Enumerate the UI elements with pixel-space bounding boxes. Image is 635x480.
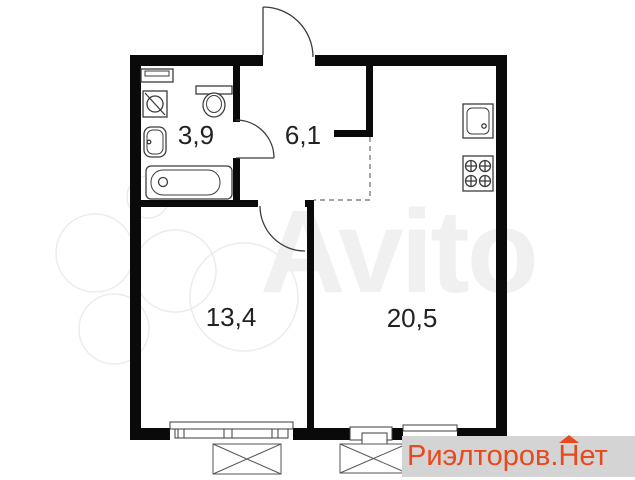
bottom-wall-segment [141, 428, 170, 440]
window-kitchen [403, 425, 457, 431]
bathroom-right-wall-upper [233, 66, 240, 122]
entrance-door [263, 7, 313, 57]
crossed-box [340, 444, 407, 473]
entrance-door-arc [263, 7, 313, 57]
bathtub [146, 166, 232, 199]
kitchen-living-room-area-label: 20,5 [387, 303, 438, 333]
logo-text-suffix: ет [579, 442, 607, 471]
bottom-wall-segment [293, 428, 350, 440]
watermark-circle [134, 230, 216, 312]
house-roof-icon [559, 435, 579, 443]
top-wall-right [315, 55, 507, 66]
bathroom-area-label: 3,9 [178, 120, 214, 150]
kitchen-sink [463, 104, 493, 138]
kitchen-wall-stub-vertical [366, 66, 373, 137]
watermark-circle [56, 214, 134, 292]
crossed-box [213, 444, 281, 474]
top-wall-left [130, 55, 263, 66]
living-room-area-label: 13,4 [206, 302, 257, 332]
bathroom-bottom-wall [141, 200, 258, 207]
watermark-text: Avito [260, 186, 536, 318]
stove [463, 156, 493, 191]
right-wall [496, 55, 507, 440]
shelf [141, 69, 173, 82]
burner [466, 161, 477, 172]
bathroom-door [236, 120, 274, 158]
wash-basin [144, 127, 166, 157]
logo-text-prefix: Риэлторов. [407, 442, 558, 471]
kitchen-fixtures [463, 104, 493, 191]
burner [480, 176, 491, 187]
balcony-boxes [213, 444, 407, 474]
logo-house-letter: Н [558, 442, 579, 471]
toilet [196, 86, 232, 117]
kitchen-wall-stub-horizontal [334, 130, 373, 137]
burner [466, 176, 477, 187]
hallway-area-label: 6,1 [285, 120, 321, 150]
window-room [170, 422, 293, 438]
floor-plan-image: Avito [0, 0, 635, 480]
floor-plan: Avito [0, 0, 635, 480]
avito-watermark: Avito [56, 176, 536, 364]
washing-machine [143, 91, 167, 117]
burner [480, 161, 491, 172]
left-wall [130, 55, 141, 440]
balcony-door [350, 427, 392, 445]
bathroom-door-arc [236, 120, 274, 158]
rooms-divider-wall [307, 200, 314, 429]
bathroom-right-wall-lower [233, 158, 240, 207]
realtorov-net-logo: Риэлторов.Нет [402, 436, 635, 477]
